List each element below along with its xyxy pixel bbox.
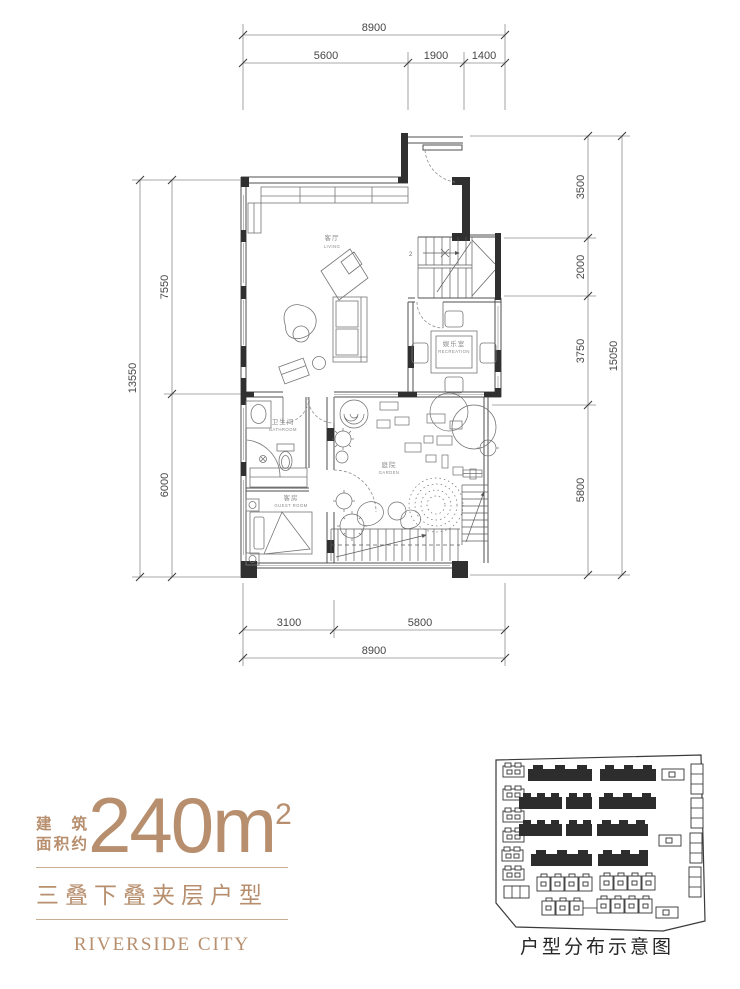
stepping-stone [405, 443, 421, 452]
chair [445, 311, 463, 327]
stepping-stone [453, 467, 463, 475]
dim-right-seg4: 5800 [575, 478, 587, 502]
stepping-stone [470, 469, 476, 479]
site-rowhouses [537, 873, 655, 915]
dim-top-seg1: 5600 [314, 50, 338, 62]
side-table [313, 357, 326, 370]
site-dark-buildings [519, 765, 656, 866]
wall-closet [261, 187, 408, 203]
dim-left-total: 13550 [127, 363, 139, 394]
blanket-fold [264, 512, 310, 554]
dim-left-seg2: 6000 [159, 473, 171, 497]
dim-right-seg3: 3750 [575, 339, 587, 363]
label-guest-cn: 客房 [284, 493, 299, 502]
hall-door-right-arc [308, 397, 334, 423]
shrub [336, 493, 352, 509]
area-number: 240 [88, 781, 212, 869]
chaise [321, 249, 368, 300]
shrub-blob [401, 510, 421, 529]
ottoman [293, 326, 309, 342]
brand-name: RIVERSIDE CITY [36, 934, 288, 956]
dimensions: 8900 5600 1900 1400 13550 7550 6000 3500… [127, 22, 630, 666]
dim-right-seg2: 2000 [575, 255, 587, 279]
stepping-stone [395, 417, 409, 425]
dim-top-seg2: 1900 [424, 50, 448, 62]
sink [251, 405, 266, 424]
recreation-door-arc [417, 302, 443, 328]
staircase: 2 [409, 237, 495, 298]
area-unit: m [212, 781, 275, 869]
chair [480, 343, 496, 363]
shrub [388, 502, 406, 520]
dim-top-total: 8900 [362, 22, 386, 34]
canopy-tree [452, 405, 496, 449]
dim-top-seg3: 1400 [472, 50, 496, 62]
pillow [254, 517, 264, 549]
area-label-line2: 面积约 [36, 835, 88, 854]
garden-stairs [331, 485, 488, 561]
stepping-stone [377, 420, 390, 428]
label-recreation-cn: 娱乐室 [443, 339, 466, 348]
sofa [333, 297, 367, 362]
garden-landscape [332, 393, 499, 541]
stepping-stone [380, 402, 398, 410]
unit-type-name: 三叠下叠夹层户型 [36, 876, 288, 910]
garden-door-arc [334, 470, 376, 512]
stepping-stone [427, 414, 445, 423]
dim-right-total: 15050 [608, 341, 620, 372]
area-label-line1: 建筑 [36, 815, 88, 834]
dim-bottom-seg1: 3100 [277, 617, 301, 629]
label-bathroom-cn: 卫生间 [272, 417, 295, 426]
dim-bottom-total: 8900 [362, 645, 386, 657]
stepping-stone [437, 436, 452, 445]
stair-level-mark: 2 [409, 252, 413, 258]
stepping-stone [424, 436, 433, 443]
bed [250, 512, 312, 554]
floor-plan: 2 [241, 133, 501, 578]
area-value: 240m2 [88, 794, 292, 858]
chair [445, 377, 463, 393]
label-guest-en: GUEST ROOM [274, 503, 307, 508]
label-living-en: LIVING [324, 244, 341, 249]
room-labels: 客厅 LIVING 娱乐室 RECREATION 卫生间 BATHROOM 客房… [269, 233, 470, 508]
guest-room-furniture [246, 499, 312, 565]
nightstand [246, 499, 259, 511]
label-bathroom-en: BATHROOM [269, 427, 297, 432]
area-exponent: 2 [275, 798, 292, 831]
area-label: 建筑 面积约 [36, 815, 88, 854]
dim-left-seg1: 7550 [159, 275, 171, 299]
toilet-tank [277, 444, 294, 451]
label-garden-en: GARDEN [379, 470, 400, 475]
lounge-chair [284, 305, 316, 339]
windows [244, 195, 499, 566]
dim-right-seg1: 3500 [575, 175, 587, 199]
dim-bottom-seg2: 5800 [408, 617, 432, 629]
site-plan-caption: 户型分布示意图 [520, 936, 674, 958]
shrub-blob [357, 502, 383, 526]
stippled-tree [409, 478, 463, 532]
sink-counter [246, 401, 271, 428]
shrub [336, 451, 348, 463]
divider-line [36, 919, 288, 920]
label-living-cn: 客厅 [325, 233, 340, 242]
coffee-table [279, 358, 310, 384]
shrub [335, 431, 351, 447]
title-block: 建筑 面积约 240m2 三叠下叠夹层户型 RIVERSIDE CITY [36, 794, 288, 956]
chair [412, 343, 428, 363]
area-row: 建筑 面积约 240m2 [36, 794, 288, 858]
stepping-stone [426, 455, 436, 462]
living-furniture [248, 187, 408, 384]
bathroom-fixtures [246, 401, 307, 487]
label-recreation-en: RECREATION [438, 349, 470, 354]
site-outline-buildings-right [656, 764, 703, 918]
vanity-counter [250, 468, 307, 487]
side-cabinet [248, 203, 261, 233]
entry-door-arc [425, 150, 455, 182]
stepping-stone [442, 455, 448, 468]
site-plan: 户型分布示意图 [496, 755, 705, 958]
label-garden-cn: 庭院 [382, 460, 397, 469]
